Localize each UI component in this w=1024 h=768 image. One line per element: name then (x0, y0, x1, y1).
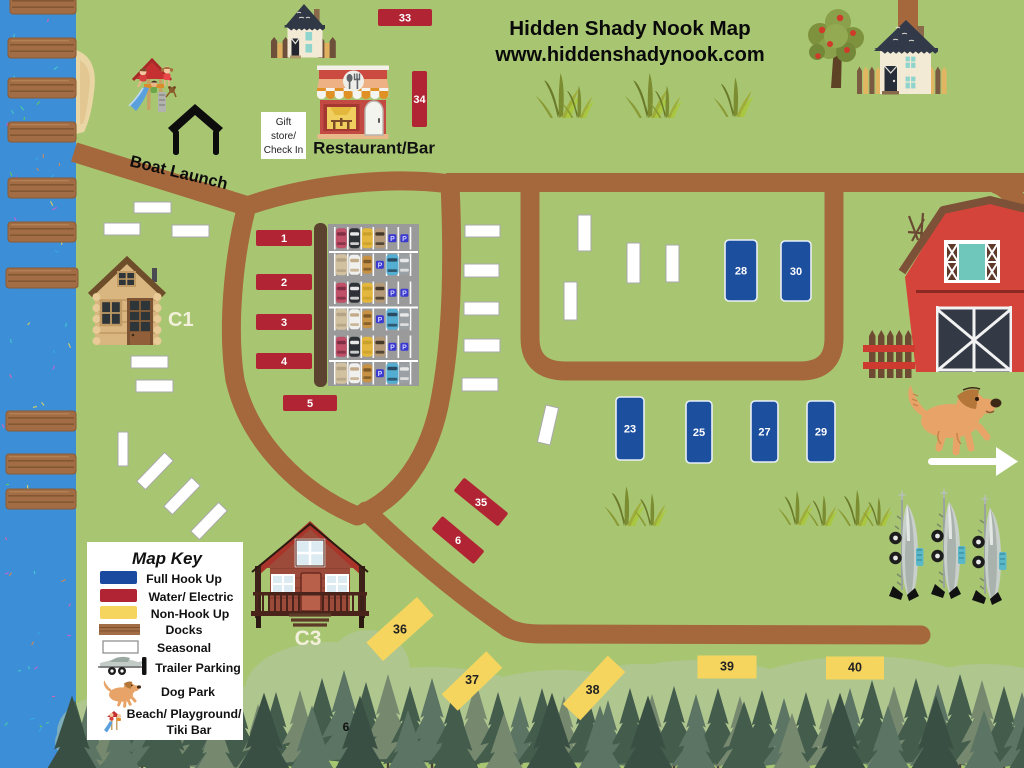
svg-text:Tiki Bar: Tiki Bar (167, 723, 212, 737)
svg-text:P: P (390, 344, 395, 351)
svg-text:store/: store/ (271, 131, 296, 142)
svg-text:Seasonal: Seasonal (157, 641, 211, 655)
svg-text:28: 28 (735, 266, 747, 278)
svg-text:27: 27 (758, 427, 770, 439)
svg-text:23: 23 (624, 424, 636, 436)
svg-text:Beach/ Playground/: Beach/ Playground/ (127, 707, 242, 721)
svg-text:40: 40 (848, 661, 862, 675)
svg-text:35: 35 (475, 497, 487, 509)
svg-text:P: P (390, 236, 395, 243)
svg-text:P: P (402, 344, 407, 351)
svg-text:37: 37 (465, 673, 479, 687)
svg-text:Dog Park: Dog Park (161, 685, 215, 699)
svg-text:P: P (378, 371, 383, 378)
svg-text:38: 38 (586, 683, 600, 697)
svg-text:3: 3 (281, 317, 287, 329)
svg-text:P: P (402, 290, 407, 297)
svg-text:2: 2 (281, 277, 287, 289)
svg-text:1: 1 (281, 233, 287, 245)
svg-text:36: 36 (393, 623, 407, 637)
svg-text:39: 39 (720, 660, 734, 674)
svg-text:C1: C1 (168, 309, 194, 331)
svg-text:5: 5 (307, 398, 313, 410)
svg-text:Docks: Docks (166, 623, 203, 637)
svg-text:34: 34 (413, 94, 426, 106)
svg-text:P: P (402, 236, 407, 243)
svg-text:Restaurant/Bar: Restaurant/Bar (313, 139, 435, 158)
svg-text:P: P (378, 262, 383, 269)
svg-text:6: 6 (343, 720, 350, 734)
svg-text:C3: C3 (295, 627, 322, 650)
svg-text:www.hiddenshadynook.com: www.hiddenshadynook.com (494, 44, 764, 66)
svg-text:P: P (378, 317, 383, 324)
svg-text:Water/ Electric: Water/ Electric (149, 590, 234, 604)
svg-text:30: 30 (790, 266, 802, 278)
svg-text:25: 25 (693, 427, 705, 439)
svg-text:Gift: Gift (276, 117, 292, 128)
svg-text:33: 33 (399, 13, 411, 25)
svg-text:29: 29 (815, 427, 827, 439)
svg-text:Hidden Shady Nook Map: Hidden Shady Nook Map (509, 17, 750, 40)
svg-text:Non-Hook Up: Non-Hook Up (151, 607, 230, 621)
svg-text:Trailer Parking: Trailer Parking (155, 661, 240, 675)
svg-text:P: P (390, 290, 395, 297)
svg-text:4: 4 (281, 356, 288, 368)
svg-text:6: 6 (455, 535, 461, 547)
svg-text:Map Key: Map Key (132, 549, 203, 568)
svg-text:Full Hook Up: Full Hook Up (146, 572, 222, 586)
svg-text:Check In: Check In (264, 145, 303, 156)
